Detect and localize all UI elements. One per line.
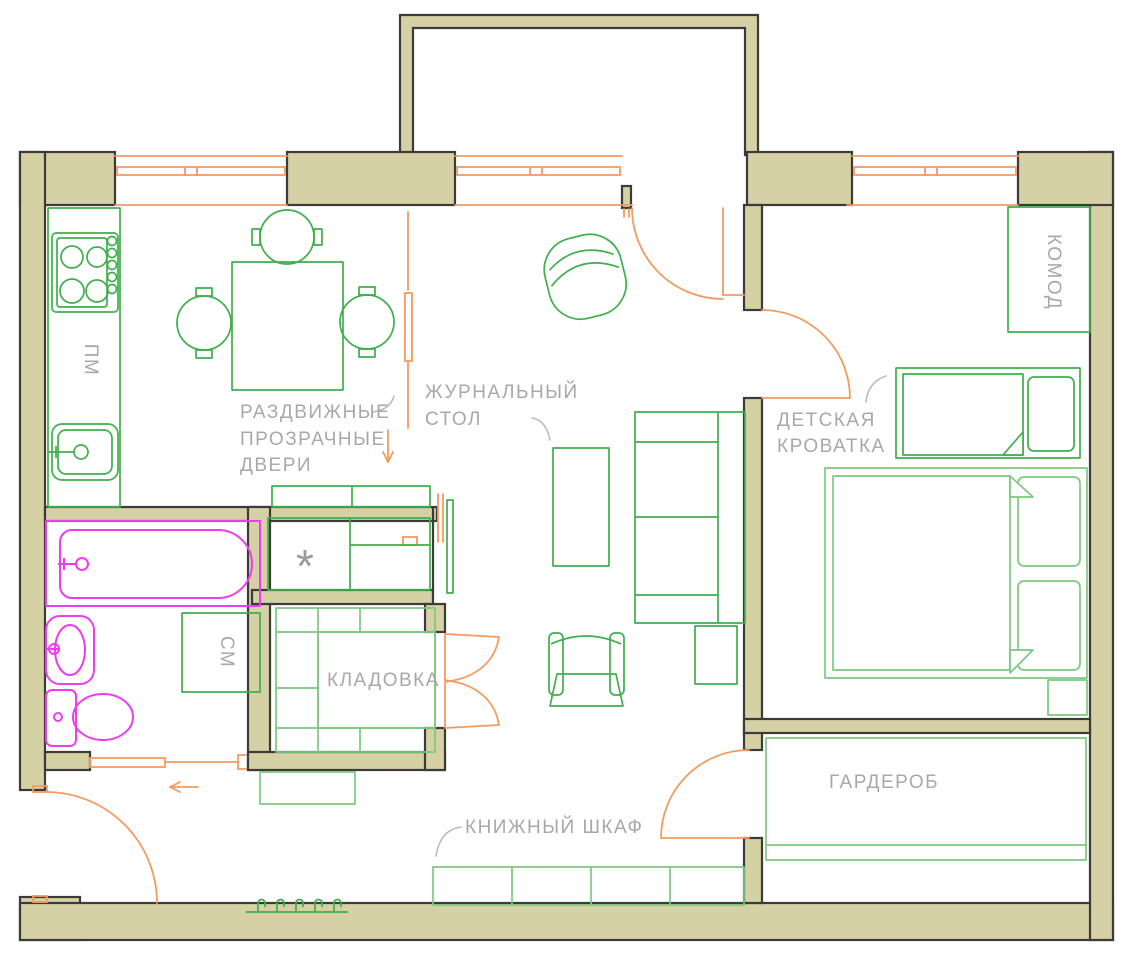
window-bedroom bbox=[847, 156, 1018, 205]
bathroom-area bbox=[46, 521, 260, 746]
wardrobe-area bbox=[766, 738, 1086, 860]
crib bbox=[896, 368, 1080, 458]
label-kids-bed-1: ДЕТСКАЯ bbox=[777, 410, 876, 431]
kitchen-sink bbox=[48, 424, 118, 480]
bedroom-door bbox=[762, 310, 850, 398]
toilet bbox=[46, 690, 133, 746]
dining-bench bbox=[272, 486, 430, 507]
double-bed bbox=[825, 468, 1087, 678]
shoe-cabinet bbox=[260, 772, 355, 804]
bathroom-sink bbox=[46, 616, 94, 684]
wall-divider-main bbox=[744, 398, 762, 750]
wall-bottom bbox=[20, 903, 1113, 940]
label-dresser: КОМОД bbox=[1043, 234, 1064, 310]
hallway-area bbox=[246, 772, 355, 912]
sofa bbox=[635, 412, 745, 623]
wall-pantry-bottom bbox=[248, 752, 445, 770]
windows-layer bbox=[115, 156, 1018, 217]
label-sliding-doors-2: ПРОЗРАЧНЫЕ bbox=[240, 429, 386, 450]
leader-crib bbox=[866, 376, 886, 402]
dining-chair-left bbox=[177, 288, 231, 358]
wall-right bbox=[1090, 152, 1113, 940]
wall-bathroom-bottom-left bbox=[45, 752, 90, 770]
label-washer: СМ bbox=[216, 636, 237, 668]
balcony-walls bbox=[400, 15, 758, 155]
label-coffee-table-1: ЖУРНАЛЬНЫЙ bbox=[425, 381, 579, 403]
label-dishwasher: ПМ bbox=[80, 344, 101, 376]
label-kids-bed-2: КРОВАТКА bbox=[777, 436, 886, 457]
bookshelf bbox=[433, 867, 744, 905]
wardrobe-door bbox=[661, 750, 749, 838]
walls-layer bbox=[20, 15, 1113, 940]
bathtub-faucet bbox=[58, 558, 88, 570]
armchair-top bbox=[537, 228, 633, 326]
coffee-table bbox=[553, 448, 609, 566]
dining-chair-top bbox=[252, 210, 322, 264]
dining-chair-right bbox=[340, 287, 394, 357]
wall-bathroom-top bbox=[45, 507, 437, 521]
leader-bookcase bbox=[436, 827, 461, 856]
stove bbox=[52, 233, 118, 312]
wall-divider-top-stub bbox=[744, 205, 762, 310]
wall-wardrobe-top bbox=[744, 719, 1090, 733]
entrance-door bbox=[33, 786, 157, 903]
pantry-bifold-doors bbox=[445, 634, 499, 728]
bathroom-sliding-door bbox=[90, 755, 246, 792]
labels-layer: ПМ РАЗДВИЖНЫЕ ПРОЗРАЧНЫЕ ДВЕРИ ЖУРНАЛЬНЫ… bbox=[80, 234, 1064, 838]
label-wardrobe: ГАРДЕРОБ bbox=[829, 772, 939, 793]
wall-top-pillar-2 bbox=[747, 152, 852, 205]
label-bookcase: КНИЖНЫЙ ШКАФ bbox=[465, 816, 643, 838]
wall-top-right-corner bbox=[1018, 152, 1113, 205]
label-sliding-doors-1: РАЗДВИЖНЫЕ bbox=[240, 402, 390, 423]
leader-coffee-table bbox=[532, 418, 550, 440]
glass-panel bbox=[447, 500, 453, 593]
balcony-door bbox=[632, 208, 744, 299]
wall-left bbox=[20, 152, 45, 790]
floor-plan-canvas: ПМ РАЗДВИЖНЫЕ ПРОЗРАЧНЫЕ ДВЕРИ ЖУРНАЛЬНЫ… bbox=[0, 0, 1128, 958]
kitchen-area bbox=[48, 208, 430, 507]
label-coffee-table-2: СТОЛ bbox=[425, 409, 482, 430]
asterisk-room bbox=[268, 518, 430, 590]
window-living bbox=[455, 156, 632, 217]
sofa-side-table bbox=[695, 626, 737, 684]
armchair-bottom bbox=[549, 633, 624, 706]
window-kitchen bbox=[115, 156, 287, 205]
wall-divider-lower bbox=[744, 838, 762, 903]
wall-asterisk-bottom bbox=[252, 590, 433, 604]
doors-layer bbox=[33, 208, 850, 903]
label-snowflake: * bbox=[296, 540, 314, 592]
label-pantry: КЛАДОВКА bbox=[327, 670, 440, 691]
nightstand bbox=[1048, 680, 1087, 715]
label-sliding-doors-3: ДВЕРИ bbox=[240, 455, 312, 476]
wall-top-pillar-1 bbox=[287, 152, 455, 205]
wardrobe-shelving bbox=[766, 738, 1086, 860]
dining-table bbox=[232, 262, 343, 390]
bathtub-enclosure bbox=[46, 521, 260, 606]
living-area bbox=[433, 228, 745, 905]
